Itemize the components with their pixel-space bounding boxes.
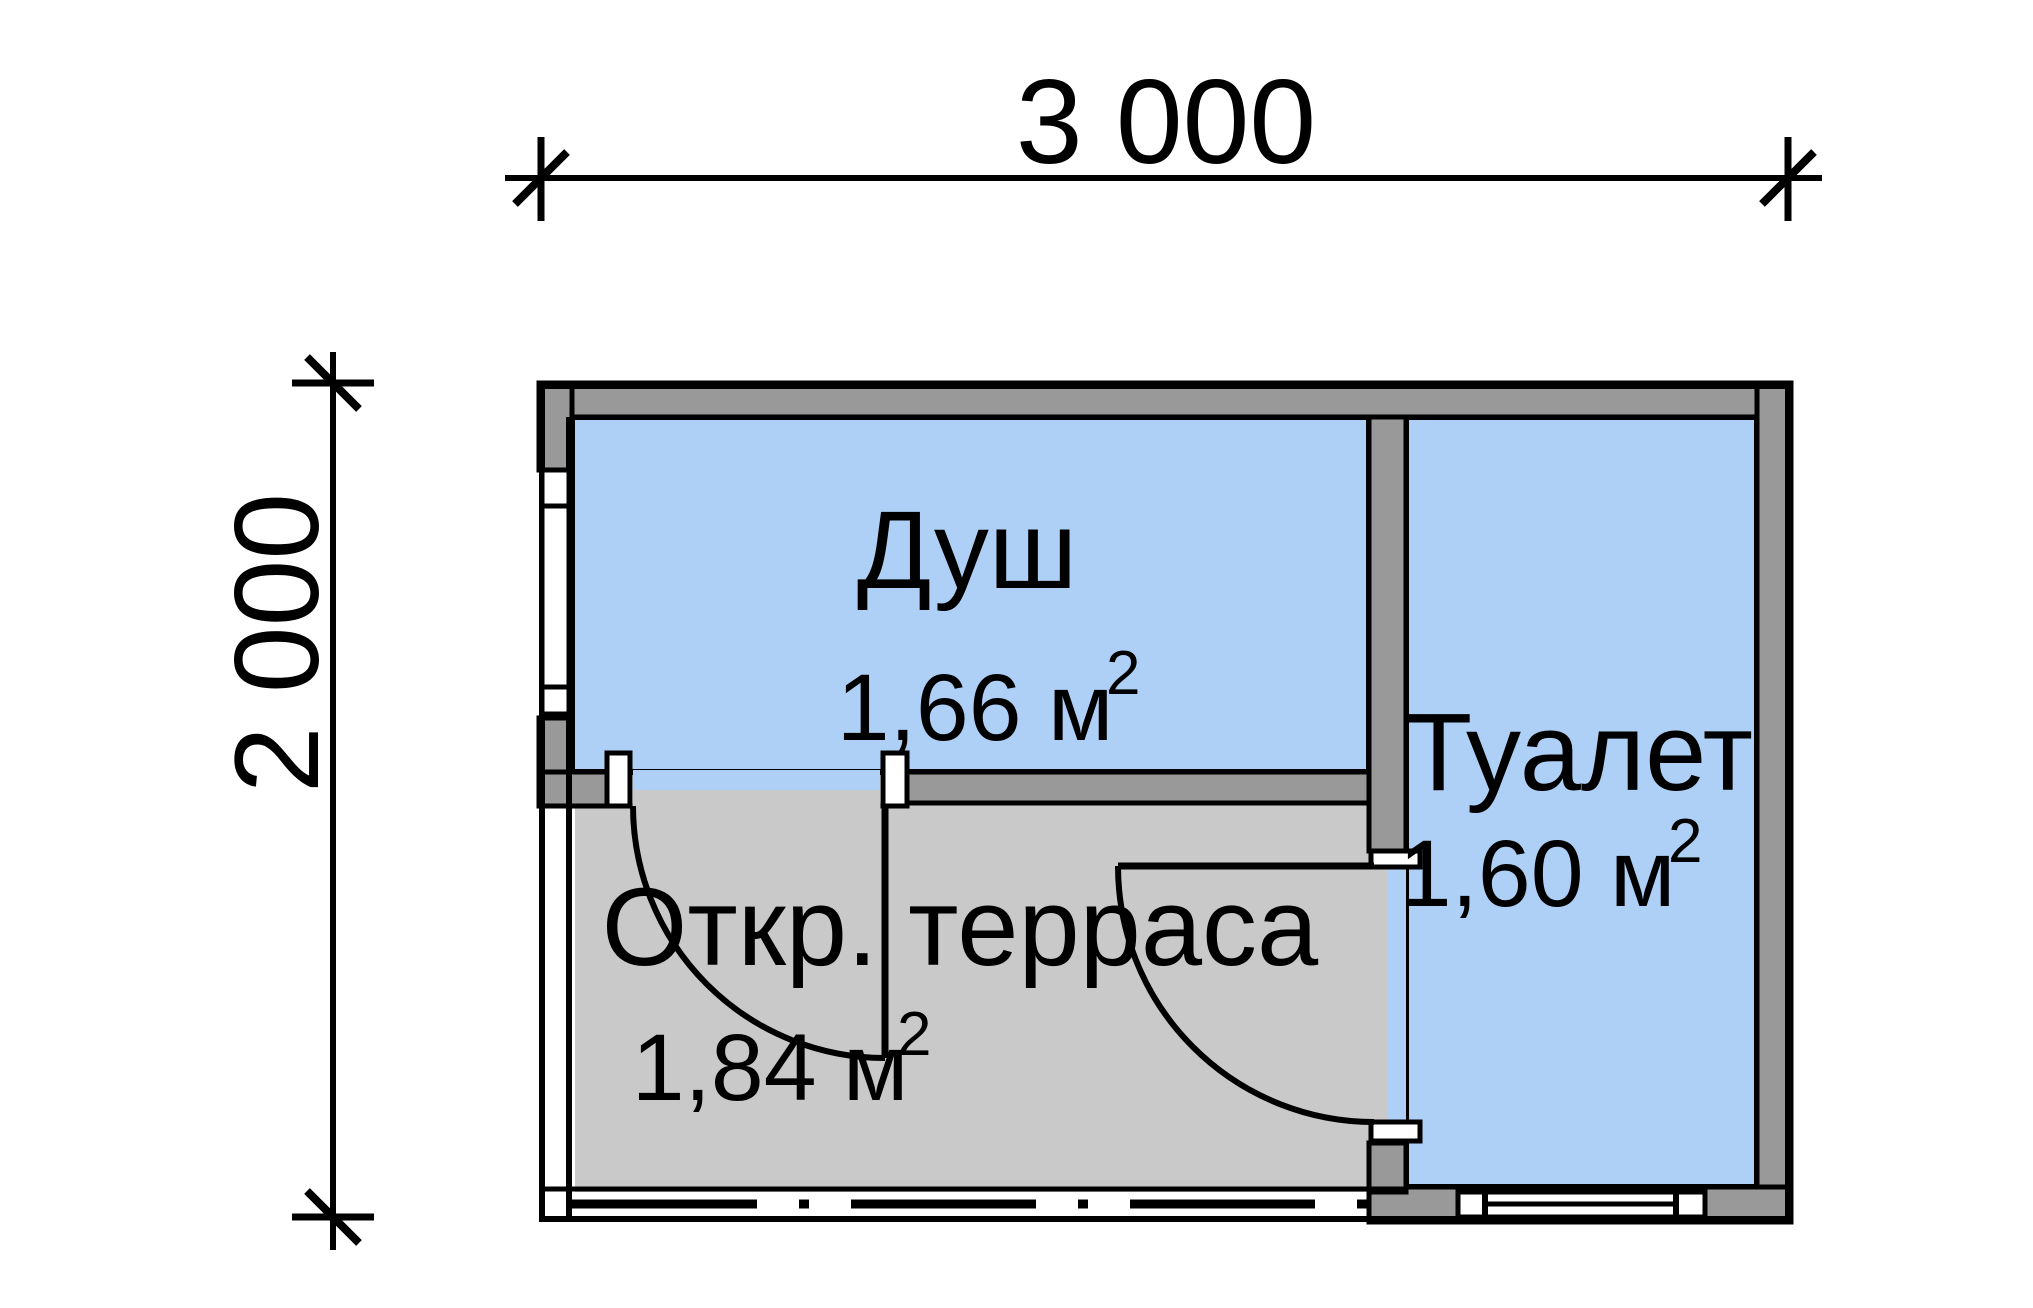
shower-door-jamb-left xyxy=(607,753,630,806)
shower-door-opening-outer xyxy=(633,790,880,806)
wall-left-stub-foot xyxy=(539,772,607,806)
room-area-toilet: 1,60 м xyxy=(1399,821,1676,927)
dim-width-label: 3 000 xyxy=(1016,55,1316,189)
dim-height-label: 2 000 xyxy=(210,493,344,793)
terrace-floor xyxy=(575,803,1369,1192)
room-label-toilet: Туалет xyxy=(1405,691,1753,814)
toilet-door-opening-outer xyxy=(1369,869,1387,1122)
room-label-terrace: Откр. терраса xyxy=(602,866,1319,989)
room-area-toilet-sup: 2 xyxy=(1668,807,1702,876)
room-area-shower-sup: 2 xyxy=(1106,639,1140,708)
toilet-door-jamb-bottom xyxy=(1371,1122,1420,1141)
room-label-shower: Душ xyxy=(857,489,1077,612)
floor-plan-drawing: 3 000 2 000 Душ 1,66 м 2 Туалет 1,60 м 2… xyxy=(0,0,2033,1308)
room-area-terrace: 1,84 м xyxy=(632,1015,909,1121)
shower-door-opening-inner xyxy=(633,770,880,790)
room-area-terrace-sup: 2 xyxy=(897,1000,931,1069)
room-area-shower: 1,66 м xyxy=(837,655,1114,761)
wall-interior-vertical xyxy=(1369,417,1406,851)
wall-interior-horizontal xyxy=(907,772,1369,803)
wall-toilet-door-stub xyxy=(1369,1143,1406,1192)
floor-plan-page: 3 000 2 000 Душ 1,66 м 2 Туалет 1,60 м 2… xyxy=(0,0,2033,1308)
